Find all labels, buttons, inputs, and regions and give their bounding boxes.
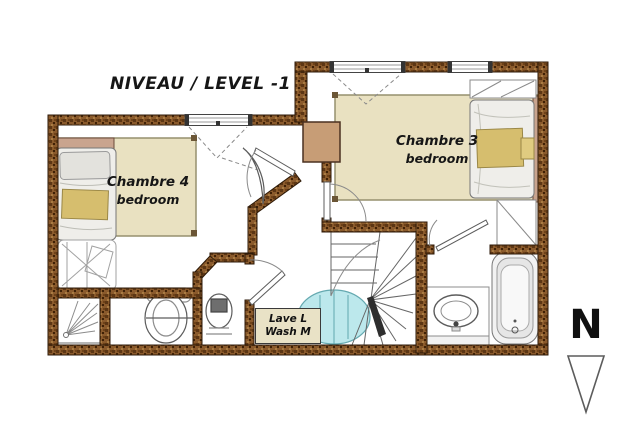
- window-top-left: [185, 115, 252, 126]
- room-name-en: bedroom: [377, 150, 497, 167]
- toilet: [206, 294, 232, 334]
- room-label-chambre-4: Chambre 4 bedroom: [88, 174, 208, 208]
- window-top-right: [448, 62, 492, 73]
- compass-north-label: N: [558, 303, 614, 347]
- room-name-fr: Chambre 3: [377, 133, 497, 150]
- room-name-fr: Chambre 4: [88, 174, 208, 191]
- bathtub: [492, 252, 538, 344]
- compass-arrow: [568, 356, 604, 412]
- duct: [303, 122, 340, 162]
- washing-machine-label-en: Wash M: [256, 326, 320, 339]
- room-label-chambre-3: Chambre 3 bedroom: [377, 133, 497, 167]
- door-wc: [249, 260, 285, 305]
- shower: [58, 298, 102, 343]
- floorplan-drawing: [0, 0, 640, 427]
- door-bathroom: [429, 220, 488, 251]
- closet-below-bed: [497, 200, 536, 246]
- washing-machine-label-box: Lave L Wash M: [255, 308, 321, 344]
- plan-title: NIVEAU / LEVEL -1: [110, 74, 330, 94]
- closet-above-bed: [470, 80, 536, 98]
- floorplan-page: NIVEAU / LEVEL -1 Chambre 4 bedroom Cham…: [0, 0, 640, 427]
- window-top-middle: [330, 62, 405, 73]
- bunk-sofa-wireframe: [58, 240, 116, 290]
- washbasin-counter: [427, 287, 489, 345]
- room-name-en: bedroom: [88, 191, 208, 208]
- washing-machine-label-fr: Lave L: [256, 313, 320, 326]
